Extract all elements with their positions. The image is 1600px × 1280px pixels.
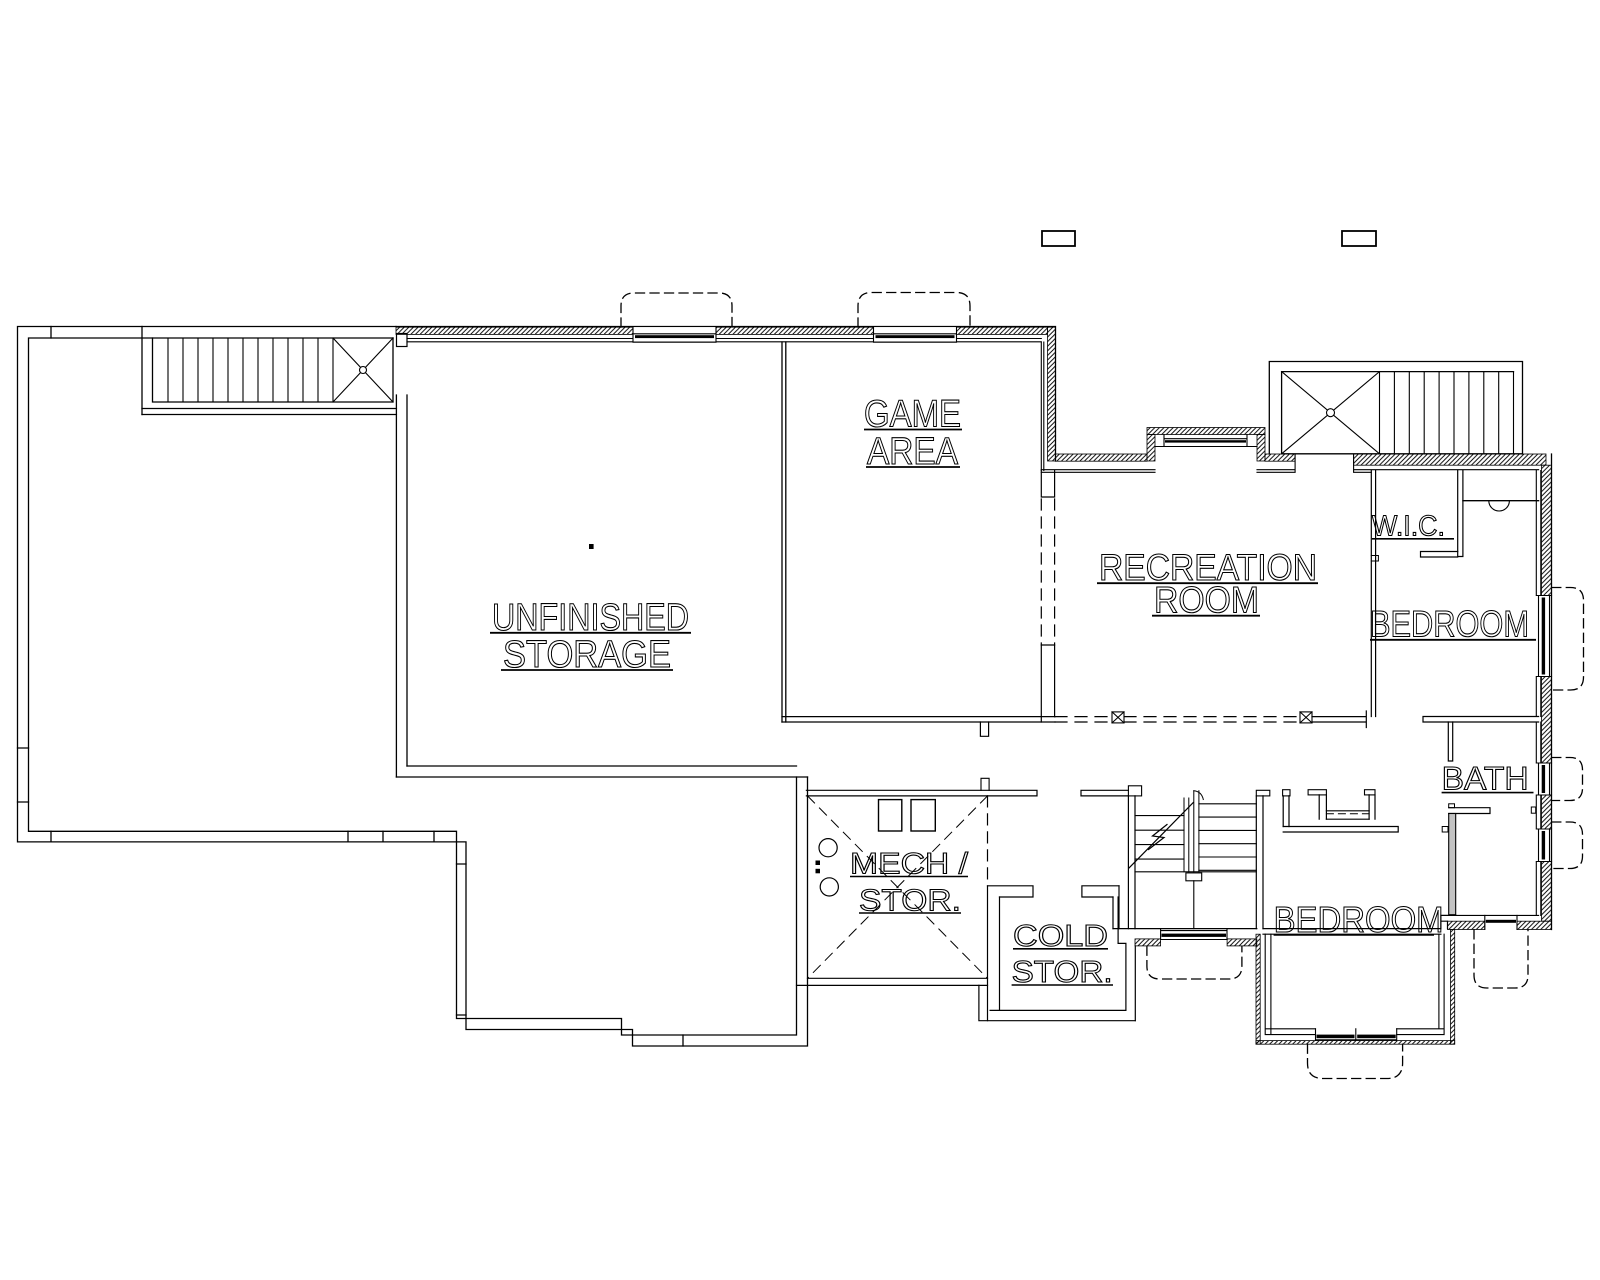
svg-text:BATH: BATH: [1442, 760, 1529, 796]
svg-text:ROOM: ROOM: [1154, 579, 1259, 620]
svg-text:STOR.: STOR.: [859, 882, 961, 917]
svg-text:STOR.: STOR.: [1012, 954, 1113, 989]
svg-text:BEDROOM: BEDROOM: [1274, 899, 1444, 940]
svg-text:W.I.C.: W.I.C.: [1372, 511, 1445, 543]
svg-text:BEDROOM: BEDROOM: [1370, 604, 1529, 645]
svg-text:COLD: COLD: [1013, 918, 1108, 953]
